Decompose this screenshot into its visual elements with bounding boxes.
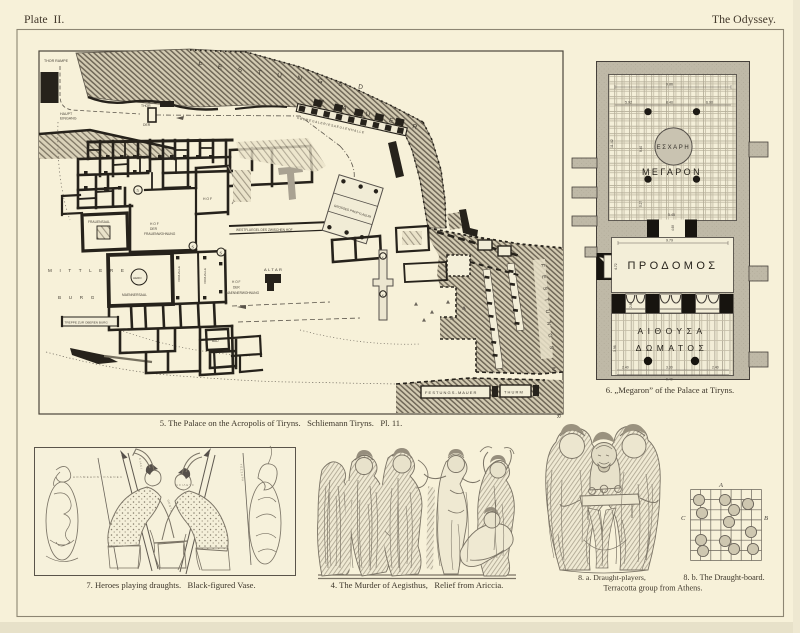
svg-text:2.40: 2.40 — [712, 366, 719, 370]
svg-text:ΠΡΟΔΟΜΟΣ: ΠΡΟΔΟΜΟΣ — [628, 260, 719, 272]
svg-text:DER: DER — [150, 227, 158, 231]
svg-text:6. „Megaron” of the Palace at: 6. „Megaron” of the Palace at Tiryns. — [606, 385, 734, 395]
svg-text:5.27: 5.27 — [639, 201, 643, 207]
svg-text:H O F: H O F — [150, 222, 159, 226]
svg-text:THOR: THOR — [141, 104, 151, 108]
svg-text:The Odyssey.: The Odyssey. — [712, 12, 776, 26]
svg-text:THOR RAMPE: THOR RAMPE — [44, 59, 69, 63]
svg-text:C: C — [681, 515, 686, 522]
svg-text:9.86: 9.86 — [666, 83, 673, 87]
svg-text:5.92: 5.92 — [625, 101, 632, 105]
svg-text:H O F: H O F — [203, 197, 212, 201]
svg-text:6.90: 6.90 — [706, 101, 713, 105]
svg-text:9.79: 9.79 — [666, 239, 673, 243]
svg-text:ΜΕΓΑΡΟΝ: ΜΕΓΑΡΟΝ — [642, 167, 702, 177]
svg-text:EINGANG: EINGANG — [60, 117, 77, 121]
svg-text:ΑΧΙΛΕΥΣ: ΑΧΙΛΕΥΣ — [176, 483, 195, 487]
svg-text:VORHALLE: VORHALLE — [177, 266, 181, 282]
svg-text:S: S — [382, 293, 384, 298]
svg-text:ΑΙΘΟΥΣΑ: ΑΙΘΟΥΣΑ — [637, 326, 706, 336]
svg-text:2.40: 2.40 — [622, 366, 629, 370]
svg-text:BAD: BAD — [212, 339, 219, 343]
svg-text:VORHALLE: VORHALLE — [203, 268, 207, 284]
svg-text:ΔΩΜΑΤΟΣ: ΔΩΜΑΤΟΣ — [636, 343, 709, 353]
svg-text:8. a. Draught-players,: 8. a. Draught-players, — [578, 573, 646, 582]
svg-text:HAUPT: HAUPT — [60, 112, 73, 116]
svg-text:Plate II.: Plate II. — [24, 12, 64, 26]
svg-text:4.72: 4.72 — [614, 263, 618, 270]
svg-text:8. b. The Draught-board.: 8. b. The Draught-board. — [683, 573, 764, 582]
svg-text:FRAUENWOHNUNG: FRAUENWOHNUNG — [144, 232, 176, 236]
svg-text:HERD: HERD — [133, 276, 142, 280]
svg-text:TREPPE ZUR OBEREN BURG: TREPPE ZUR OBEREN BURG — [65, 320, 109, 324]
svg-text:DER: DER — [143, 123, 151, 127]
svg-text:8.40: 8.40 — [666, 101, 673, 105]
svg-text:A: A — [718, 482, 723, 489]
svg-text:ΔΟΛΜΕΔΟΝΤΟΛΕΝΕΛ: ΔΟΛΜΕΔΟΝΤΟΛΕΝΕΛ — [73, 475, 123, 479]
svg-text:T H U R M: T H U R M — [504, 390, 523, 395]
svg-text:Terracotta group from Athens.: Terracotta group from Athens. — [603, 584, 702, 593]
svg-text:F E S T U N G S - M A U E R: F E S T U N G S - M A U E R — [425, 390, 477, 395]
svg-text:11.42: 11.42 — [610, 139, 614, 148]
svg-text:5.45: 5.45 — [668, 213, 675, 217]
svg-text:5. The Palace on the Acropolis: 5. The Palace on the Acropolis of Tiryns… — [160, 418, 403, 428]
svg-text:ΕΣΧΑΡΗ: ΕΣΧΑΡΗ — [657, 145, 691, 151]
svg-text:ALTAR: ALTAR — [264, 267, 283, 272]
svg-text:4.69: 4.69 — [671, 225, 675, 231]
svg-text:B: B — [764, 515, 768, 522]
svg-text:3.96: 3.96 — [613, 345, 617, 352]
svg-text:S: S — [382, 255, 384, 260]
svg-text:2.80: 2.80 — [629, 302, 633, 308]
svg-text:MAENNERSAAL: MAENNERSAAL — [122, 293, 147, 297]
svg-text:DER: DER — [233, 286, 240, 290]
svg-text:7. Heroes playing draughts.: 7. Heroes playing draughts. Black-figure… — [86, 580, 255, 590]
svg-text:9.40: 9.40 — [666, 378, 673, 382]
svg-text:M I T T L E R E: M I T T L E R E — [48, 268, 127, 273]
svg-text:H O F: H O F — [232, 280, 241, 284]
svg-text:8.40: 8.40 — [639, 146, 643, 152]
svg-text:4. The Murder of Aegisthus,: 4. The Murder of Aegisthus, Relief from … — [331, 580, 504, 590]
svg-text:FRAUENSAAL: FRAUENSAAL — [88, 220, 110, 224]
svg-text:WESTFLUEGEL DES ZWISCHEN HOF: WESTFLUEGEL DES ZWISCHEN HOF — [236, 228, 293, 232]
svg-text:MAENNERWOHNUNG: MAENNERWOHNUNG — [226, 291, 260, 295]
svg-text:3.30: 3.30 — [666, 366, 673, 370]
svg-text:B U R G: B U R G — [58, 295, 98, 300]
